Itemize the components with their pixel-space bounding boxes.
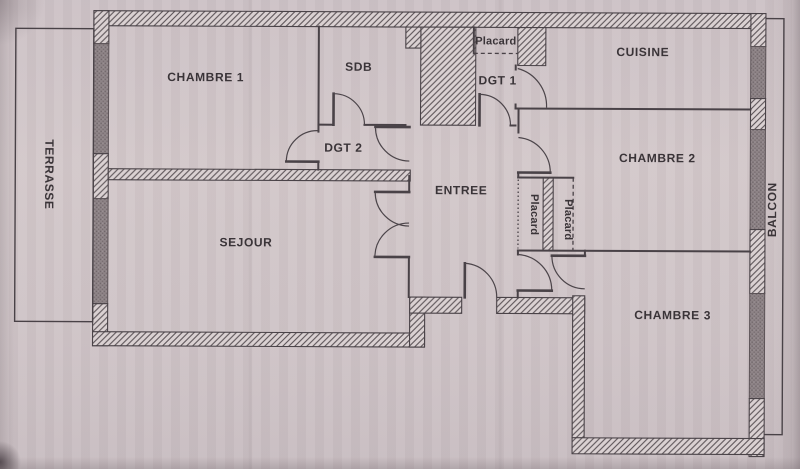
room-label-dgt-1: DGT 1 bbox=[478, 73, 516, 87]
wall-bottom-sejour bbox=[93, 332, 425, 347]
door-chambre2 bbox=[518, 138, 550, 173]
wall-right-hatch-3 bbox=[750, 230, 765, 294]
wall-bottom-chambre3 bbox=[572, 438, 764, 455]
room-label-chambre-1: CHAMBRE 1 bbox=[167, 70, 244, 84]
room-label-placard-droit: Placard bbox=[562, 199, 574, 240]
wall-bottom-entree-left bbox=[410, 297, 462, 313]
wall-left-window-1 bbox=[93, 44, 108, 154]
wall-bottom-entree-right bbox=[497, 297, 585, 313]
wall-left-hatch-1 bbox=[94, 11, 109, 44]
wall-right-window-3 bbox=[749, 294, 764, 399]
wall-mass-cuisine bbox=[518, 28, 546, 66]
door-dgt1-cuisine bbox=[518, 69, 547, 108]
placard-divider-wall bbox=[543, 178, 553, 251]
partition-sejour-entree bbox=[409, 176, 410, 297]
wall-left-window-2 bbox=[93, 199, 108, 304]
double-door-sejour bbox=[375, 192, 409, 257]
wall-right-hatch-1 bbox=[751, 14, 766, 47]
door-chambre3 bbox=[552, 256, 585, 289]
room-label-chambre-2: CHAMBRE 2 bbox=[619, 151, 696, 165]
partition-chambre2-chambre3 bbox=[518, 251, 750, 252]
room-label-sdb: SDB bbox=[345, 60, 372, 74]
wall-right-hatch-2 bbox=[750, 99, 765, 130]
partition-chambre1-sdb bbox=[318, 27, 319, 170]
partition-cuisine-chambre2 bbox=[516, 109, 751, 110]
wall-mass-notch bbox=[406, 27, 421, 48]
wall-chambre3-west bbox=[572, 296, 585, 438]
door-entrance-front bbox=[465, 263, 497, 297]
wall-top bbox=[94, 11, 766, 29]
room-label-dgt-2: DGT 2 bbox=[324, 141, 362, 155]
wall-chambre1-sejour bbox=[108, 169, 410, 181]
room-label-placard-gauche: Placard bbox=[528, 194, 540, 235]
room-label-balcon: BALCON bbox=[765, 182, 779, 237]
room-label-cuisine: CUISINE bbox=[616, 45, 669, 59]
door-dgt2-entree bbox=[375, 127, 409, 161]
wall-mass-sdb-dgt1 bbox=[420, 27, 475, 125]
door-entree-hall bbox=[518, 255, 552, 291]
floor-plan-drawing: TERRASSE CHAMBRE 1 SDB Placard DGT 1 CUI… bbox=[0, 0, 800, 469]
room-label-placard-haut: Placard bbox=[475, 35, 516, 47]
room-label-terrasse: TERRASSE bbox=[42, 139, 56, 209]
room-label-chambre-3: CHAMBRE 3 bbox=[634, 308, 711, 322]
room-label-sejour: SEJOUR bbox=[219, 235, 272, 249]
room-label-entree: ENTREE bbox=[435, 183, 487, 197]
interior-walls bbox=[108, 26, 554, 251]
wall-right-window-2 bbox=[750, 130, 765, 230]
wall-right-window-1 bbox=[751, 47, 766, 99]
door-sdb bbox=[333, 94, 364, 125]
door-chambre1 bbox=[286, 130, 318, 161]
wall-left-hatch-2 bbox=[93, 154, 108, 199]
scanned-page: TERRASSE CHAMBRE 1 SDB Placard DGT 1 CUI… bbox=[0, 0, 800, 469]
door-dgt1-entree bbox=[479, 94, 510, 125]
